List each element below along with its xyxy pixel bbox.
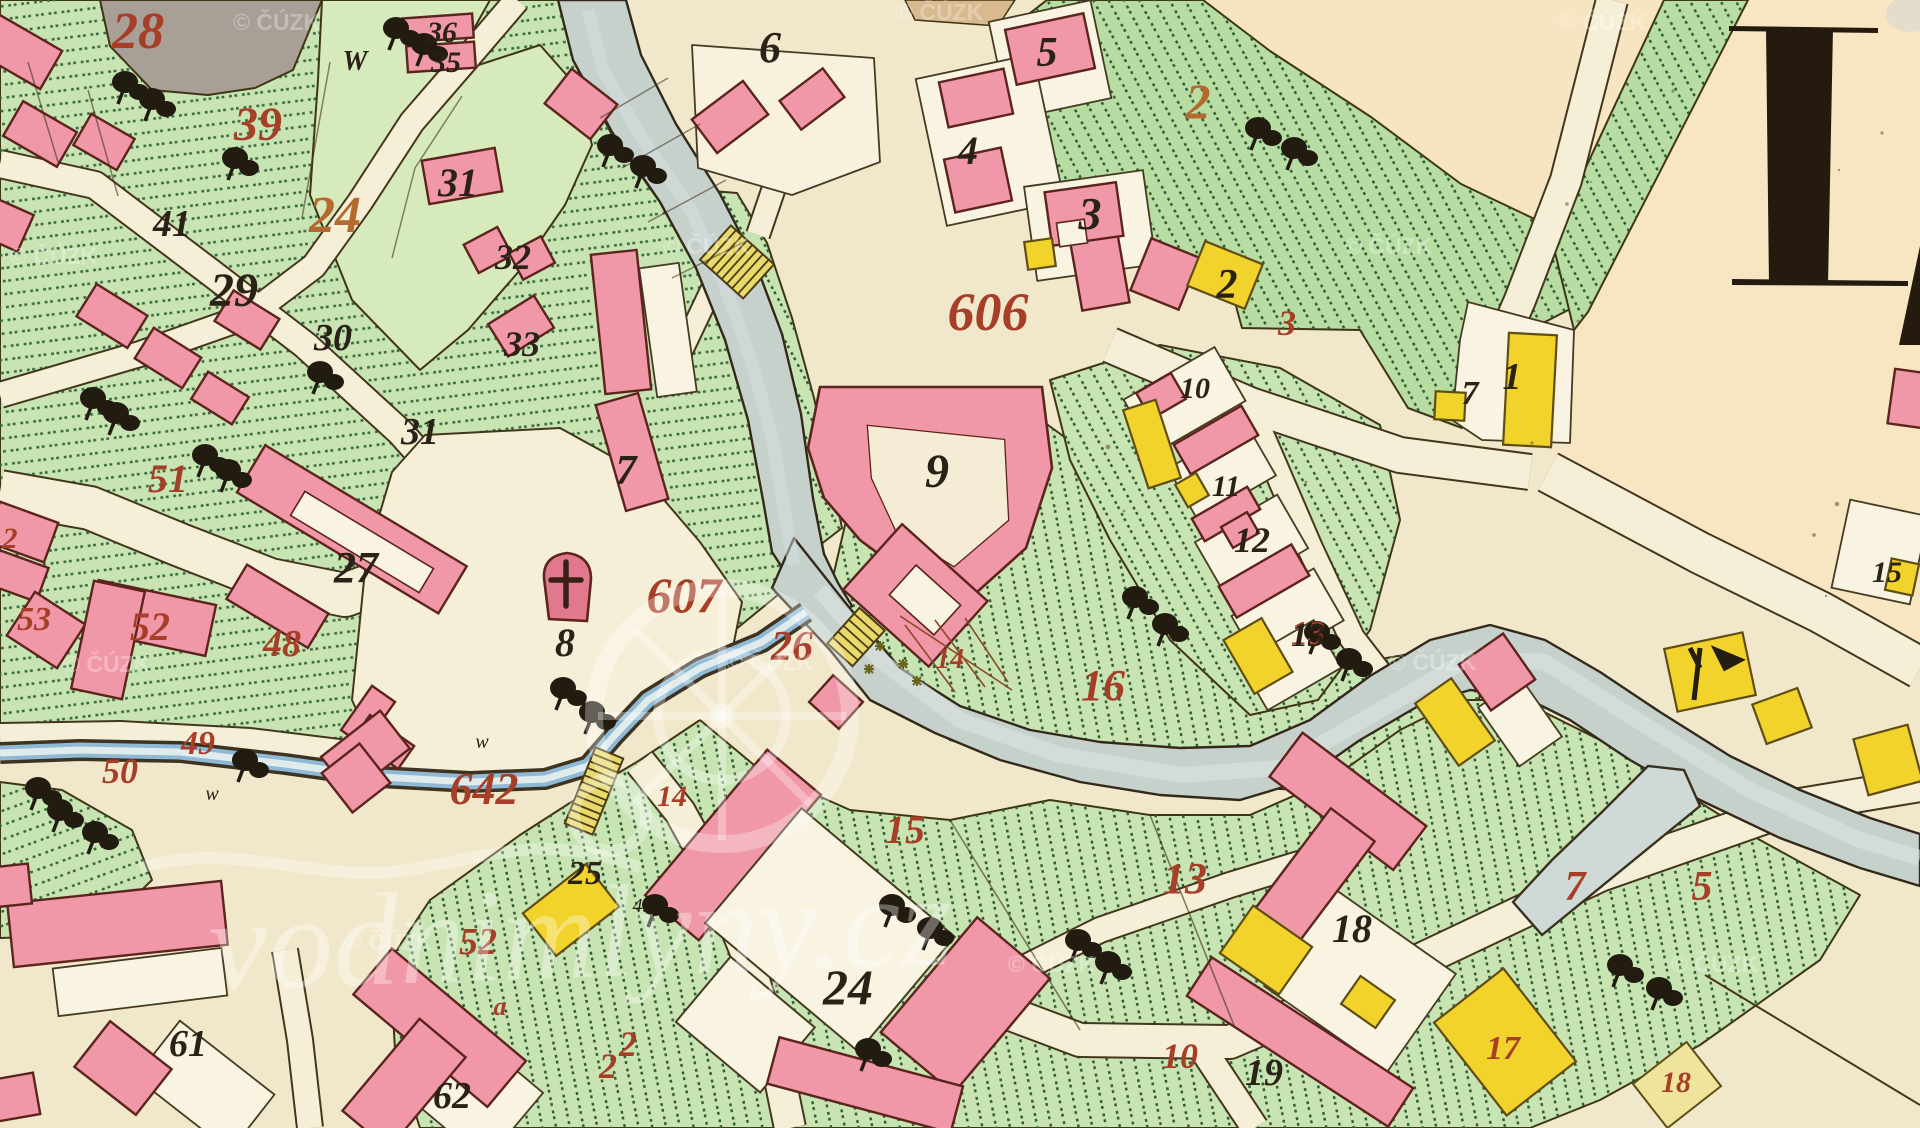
svg-text:52: 52 xyxy=(130,604,170,649)
svg-text:10: 10 xyxy=(1180,372,1210,405)
svg-text:30: 30 xyxy=(313,317,352,359)
svg-text:61: 61 xyxy=(169,1023,207,1065)
svg-text:51: 51 xyxy=(148,456,188,501)
svg-text:11: 11 xyxy=(1212,470,1240,503)
svg-text:© ČÚZK: © ČÚZK xyxy=(63,650,151,677)
svg-text:35: 35 xyxy=(430,46,461,79)
svg-text:2: 2 xyxy=(2,522,18,555)
svg-text:© ČÚZK: © ČÚZK xyxy=(896,0,984,25)
svg-text:13: 13 xyxy=(1163,854,1207,903)
svg-text:15: 15 xyxy=(1872,556,1902,589)
svg-text:33: 33 xyxy=(503,324,540,364)
svg-text:10: 10 xyxy=(1162,1036,1198,1076)
svg-text:14: 14 xyxy=(936,644,964,675)
svg-text:5: 5 xyxy=(1037,30,1058,76)
svg-text:24: 24 xyxy=(308,187,361,244)
svg-text:49: 49 xyxy=(180,725,215,762)
svg-text:18: 18 xyxy=(1661,1066,1691,1099)
svg-text:17: 17 xyxy=(1486,1030,1522,1067)
svg-text:16: 16 xyxy=(1081,661,1125,710)
svg-text:5: 5 xyxy=(1692,864,1713,910)
svg-text:2: 2 xyxy=(1185,73,1211,129)
svg-text:606: 606 xyxy=(948,282,1029,342)
svg-text:28: 28 xyxy=(111,3,164,60)
svg-text:7: 7 xyxy=(1462,375,1481,412)
svg-text:2: 2 xyxy=(618,1024,637,1064)
svg-text:© ČÚZK: © ČÚZK xyxy=(1008,950,1096,977)
svg-text:2: 2 xyxy=(598,1046,617,1086)
svg-text:© ČÚZK: © ČÚZK xyxy=(663,232,751,259)
svg-text:© ČÚZK: © ČÚZK xyxy=(1389,648,1477,675)
svg-text:29: 29 xyxy=(209,264,258,317)
svg-text:48: 48 xyxy=(262,623,301,665)
svg-text:© ČÚZK: © ČÚZK xyxy=(1559,8,1647,35)
svg-text:vodnimlyny.cz: vodnimlyny.cz xyxy=(206,846,955,1019)
svg-text:w: w xyxy=(475,731,489,753)
svg-text:© ČÚZK: © ČÚZK xyxy=(10,242,98,269)
svg-text:50: 50 xyxy=(102,751,138,791)
svg-text:31: 31 xyxy=(400,411,439,453)
svg-text:© ČÚZK: © ČÚZK xyxy=(1345,232,1433,259)
svg-text:13: 13 xyxy=(1291,617,1325,654)
svg-text:6: 6 xyxy=(759,23,781,72)
svg-text:2: 2 xyxy=(1216,262,1238,308)
svg-text:19: 19 xyxy=(1245,1052,1283,1094)
svg-text:12: 12 xyxy=(1234,520,1270,560)
svg-text:3: 3 xyxy=(1078,188,1102,239)
svg-text:4: 4 xyxy=(957,128,978,173)
svg-text:8: 8 xyxy=(555,620,575,665)
svg-text:© ČÚZK: © ČÚZK xyxy=(1671,950,1759,977)
svg-text:53: 53 xyxy=(17,601,51,638)
svg-text:9: 9 xyxy=(925,445,949,498)
svg-text:3: 3 xyxy=(1277,303,1296,343)
svg-text:7: 7 xyxy=(616,448,639,494)
svg-text:62: 62 xyxy=(433,1075,471,1117)
svg-text:32: 32 xyxy=(494,237,531,277)
svg-text:39: 39 xyxy=(233,98,282,151)
svg-text:© ČÚZK: © ČÚZK xyxy=(233,8,321,35)
svg-text:15: 15 xyxy=(885,807,925,852)
svg-text:w: w xyxy=(205,783,219,805)
svg-text:W: W xyxy=(343,46,370,77)
svg-text:18: 18 xyxy=(1332,906,1372,951)
svg-text:36: 36 xyxy=(426,16,457,49)
svg-text:642: 642 xyxy=(450,763,519,814)
svg-text:1: 1 xyxy=(1503,356,1522,398)
svg-text:27: 27 xyxy=(333,543,380,592)
svg-text:31: 31 xyxy=(437,160,478,205)
svg-text:14: 14 xyxy=(657,780,687,813)
svg-text:7: 7 xyxy=(1565,864,1588,910)
svg-text:41: 41 xyxy=(152,203,191,245)
